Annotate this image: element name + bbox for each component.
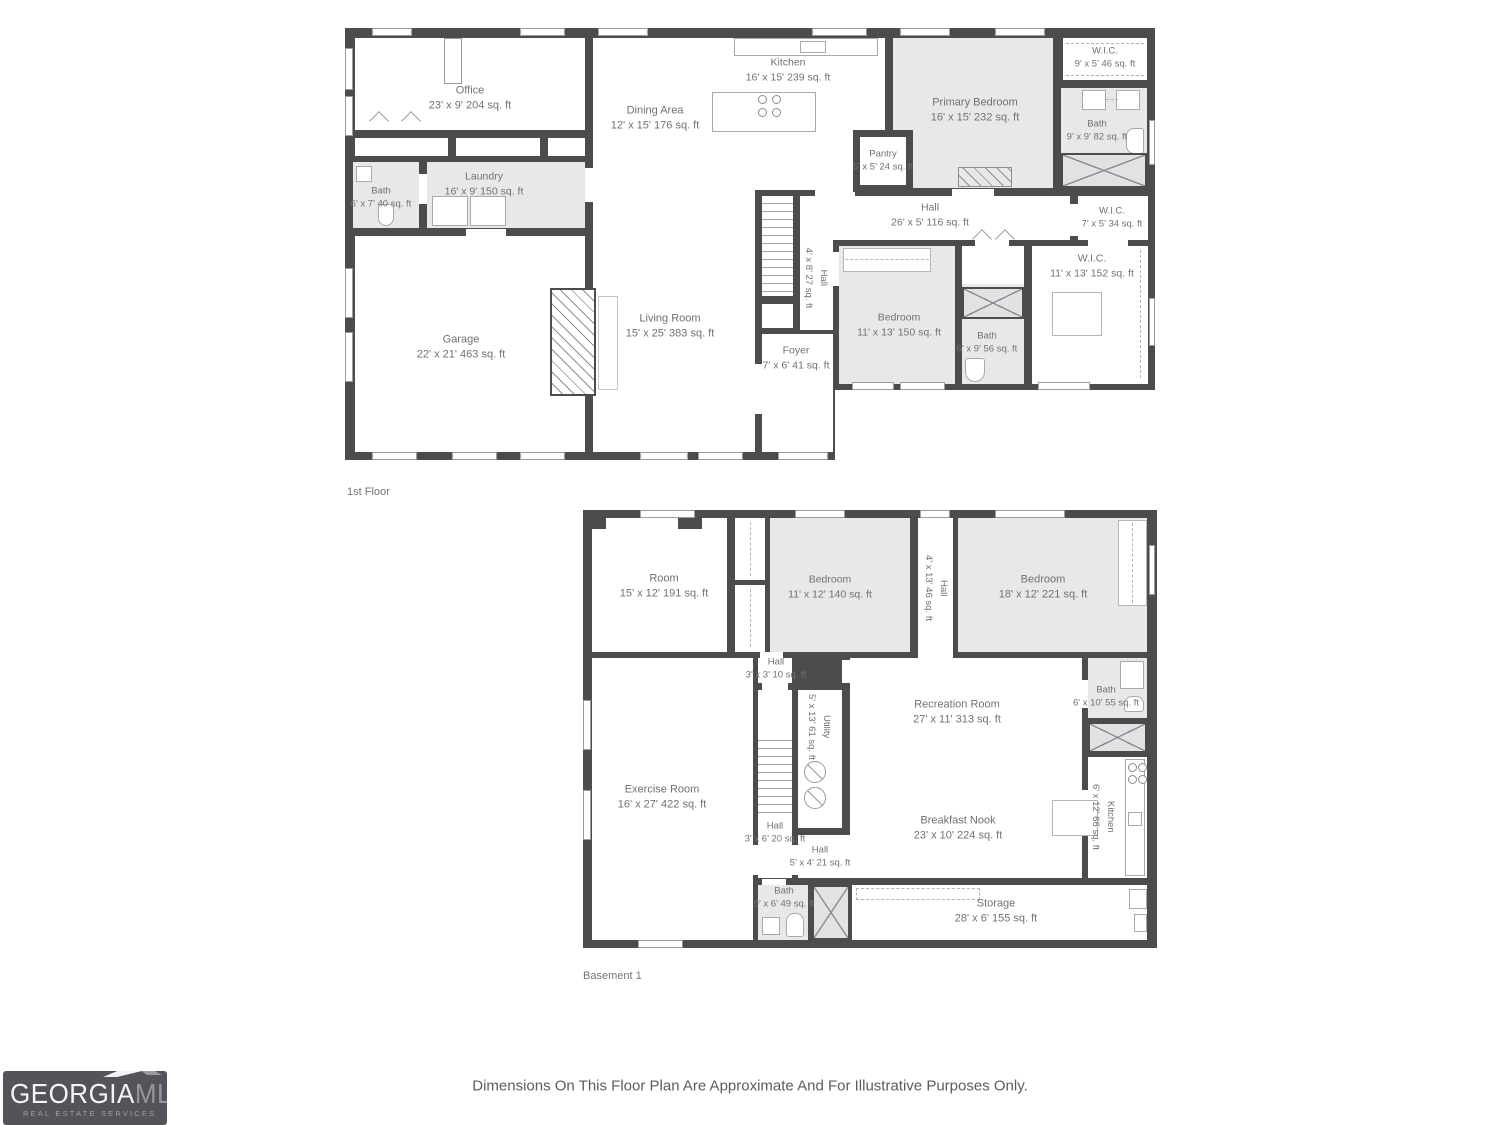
staircase <box>762 196 793 296</box>
label-garage: Garage22' x 21' 463 sq. ft <box>417 333 506 364</box>
kitchen-sink <box>800 41 826 53</box>
storage-box <box>1129 889 1147 909</box>
shower <box>962 287 1024 319</box>
toilet <box>1126 128 1144 154</box>
label-dining: Dining Area12' x 15' 176 sq. ft <box>611 104 700 135</box>
label-bedroom-a: Bedroom11' x 12' 140 sq. ft <box>788 572 872 601</box>
wall-pillar <box>592 518 606 529</box>
floorplan-canvas: Office23' x 9' 204 sq. ft Kitchen16' x 1… <box>0 0 1500 1125</box>
wic-shelf-dash <box>1140 250 1141 378</box>
window <box>583 700 591 750</box>
office-duct <box>444 38 462 84</box>
storage-box <box>1134 914 1147 932</box>
disclaimer-text: Dimensions On This Floor Plan Are Approx… <box>472 1078 1028 1095</box>
label-hall-stairs: Hall4' x 8' 27 sq. ft <box>801 248 831 309</box>
label-bedroom-mid: Bedroom11' x 13' 150 sq. ft <box>857 310 941 339</box>
window <box>698 452 743 460</box>
shower <box>1088 722 1147 753</box>
window <box>452 452 497 460</box>
window <box>920 510 950 518</box>
window <box>1149 545 1155 595</box>
closet-rod-dash <box>750 522 751 576</box>
stair-landing <box>762 304 793 328</box>
window <box>900 382 945 390</box>
window <box>372 452 417 460</box>
window <box>995 510 1065 518</box>
window <box>1038 382 1090 390</box>
wall-divider <box>448 138 456 156</box>
fireplace <box>550 288 596 396</box>
front-door-opening <box>778 452 828 460</box>
utility-door-tab <box>842 718 849 732</box>
label-basement-kitchen: Kitchen6' x 12' 66 sq. ft <box>1088 784 1118 850</box>
door-opening <box>1088 240 1128 246</box>
door-opening <box>833 252 839 286</box>
label-kitchen: Kitchen16' x 15' 239 sq. ft <box>746 55 831 84</box>
first-floor-caption: 1st Floor <box>347 486 390 498</box>
window <box>638 940 683 948</box>
door-opening <box>815 190 855 196</box>
logo-tagline: REAL ESTATE SERVICES <box>23 1109 156 1118</box>
label-hall-top: Hall3' x 3' 10 sq. ft <box>746 656 807 683</box>
stove-burner <box>758 95 767 104</box>
bath-sink <box>356 166 372 182</box>
label-office: Office23' x 9' 204 sq. ft <box>429 84 511 115</box>
kitchen-sink <box>1128 812 1142 826</box>
stove-burner <box>1128 763 1137 772</box>
label-hall-vertical: Hall4' x 13' 46 sq. ft <box>921 555 951 621</box>
hvac-unit <box>804 761 826 783</box>
roof-icon <box>103 1071 163 1078</box>
window <box>995 28 1045 36</box>
window <box>1149 120 1155 165</box>
label-bedroom-b: Bedroom18' x 12' 221 sq. ft <box>999 573 1088 604</box>
stove-burner <box>772 108 781 117</box>
vanity-sink <box>1116 90 1140 110</box>
window <box>345 96 353 136</box>
fireplace-hearth <box>598 296 618 390</box>
wall-pillar <box>678 518 702 529</box>
window <box>345 48 353 90</box>
label-wic-top: W.I.C.9' x 5' 46 sq. ft <box>1075 45 1136 72</box>
window <box>1149 298 1155 346</box>
dryer <box>470 196 506 226</box>
washer <box>432 196 468 226</box>
label-foyer: Foyer7' x 6' 41 sq. ft <box>762 343 829 372</box>
window <box>900 28 950 36</box>
room-recreation <box>850 658 1082 878</box>
window <box>852 382 894 390</box>
stove-burner <box>1138 775 1147 784</box>
label-wic-large: W.I.C.11' x 13' 152 sq. ft <box>1050 251 1134 280</box>
basement-caption: Basement 1 <box>583 970 642 982</box>
georgia-mls-logo: GEORGIAMLS REAL ESTATE SERVICES <box>3 1071 167 1125</box>
label-bath-mid: Bath6' x 9' 56 sq. ft <box>957 330 1018 357</box>
door-opening <box>419 174 427 204</box>
bath-sink <box>762 917 780 935</box>
window <box>345 332 353 382</box>
shower <box>812 885 850 940</box>
stove-burner <box>1128 775 1137 784</box>
logo-brand-secondary: MLS <box>135 1078 167 1110</box>
wall-divider <box>540 138 548 156</box>
label-hall-mid: Hall3' x 6' 20 sq. ft <box>745 820 806 847</box>
bedroom-closet <box>843 248 931 272</box>
stove-burner <box>758 108 767 117</box>
label-breakfast: Breakfast Nook23' x 10' 224 sq. ft <box>914 814 1003 845</box>
window <box>520 28 565 36</box>
label-primary-bedroom: Primary Bedroom16' x 15' 232 sq. ft <box>931 96 1020 127</box>
label-living: Living Room15' x 25' 383 sq. ft <box>626 312 715 343</box>
label-pantry: Pantry5' x 5' 24 sq. ft <box>853 148 914 175</box>
label-bath-upper: Bath6' x 10' 55 sq. ft <box>1073 684 1139 711</box>
window <box>795 510 845 518</box>
wic-shelf-dash <box>1066 75 1144 76</box>
window <box>812 28 867 36</box>
toilet <box>965 358 985 382</box>
label-hall-lower: Hall5' x 4' 21 sq. ft <box>790 844 851 871</box>
toilet <box>786 913 804 937</box>
door-opening <box>585 168 593 202</box>
label-wic-small: W.I.C.7' x 5' 34 sq. ft <box>1082 205 1143 232</box>
closet-rod-dash <box>845 259 929 260</box>
label-recreation: Recreation Room27' x 11' 313 sq. ft <box>913 698 1001 729</box>
window <box>372 28 412 36</box>
bath-vanity-area <box>962 246 1024 284</box>
closet-rod-dash <box>1132 523 1133 603</box>
door-opening <box>466 229 506 236</box>
logo-brand: GEORGIAMLS <box>10 1078 167 1111</box>
hall-closet-strip <box>355 138 585 156</box>
window <box>583 790 591 840</box>
hvac-unit <box>804 787 826 809</box>
vanity-sink <box>1082 90 1106 110</box>
window <box>640 452 688 460</box>
window <box>598 28 648 36</box>
shower <box>1061 153 1147 188</box>
label-storage: Storage28' x 6' 155 sq. ft <box>955 897 1037 928</box>
door-opening <box>755 364 762 414</box>
window <box>520 452 565 460</box>
label-utility: Utility5' x 13' 61 sq. ft <box>804 694 834 760</box>
label-bath-primary: Bath9' x 9' 82 sq. ft <box>1067 118 1128 145</box>
door-opening <box>842 660 850 683</box>
logo-brand-primary: GEORGIA <box>10 1078 135 1110</box>
label-exercise: Exercise Room16' x 27' 422 sq. ft <box>618 783 707 814</box>
window <box>345 268 353 318</box>
primary-bench <box>958 167 1012 187</box>
label-bath-lower: Bath9' x 6' 49 sq. ft <box>754 885 815 912</box>
door-opening <box>952 189 994 196</box>
window <box>640 510 695 518</box>
label-laundry: Laundry16' x 9' 150 sq. ft <box>445 169 524 198</box>
door-opening <box>762 683 788 690</box>
stair-top-landing <box>758 690 792 733</box>
label-hall-main: Hall26' x 5' 116 sq. ft <box>891 200 969 229</box>
label-basement-room: Room15' x 12' 191 sq. ft <box>620 572 709 603</box>
closet-rod-dash <box>750 589 751 647</box>
door-opening <box>753 845 758 875</box>
label-bath-left: Bath6' x 7' 40 sq. ft <box>351 185 412 212</box>
stove-burner <box>1138 763 1147 772</box>
staircase <box>758 733 792 813</box>
wic-island <box>1052 292 1102 336</box>
stove-burner <box>772 95 781 104</box>
door-opening <box>1070 204 1078 236</box>
vanity-dash <box>1106 99 1118 100</box>
